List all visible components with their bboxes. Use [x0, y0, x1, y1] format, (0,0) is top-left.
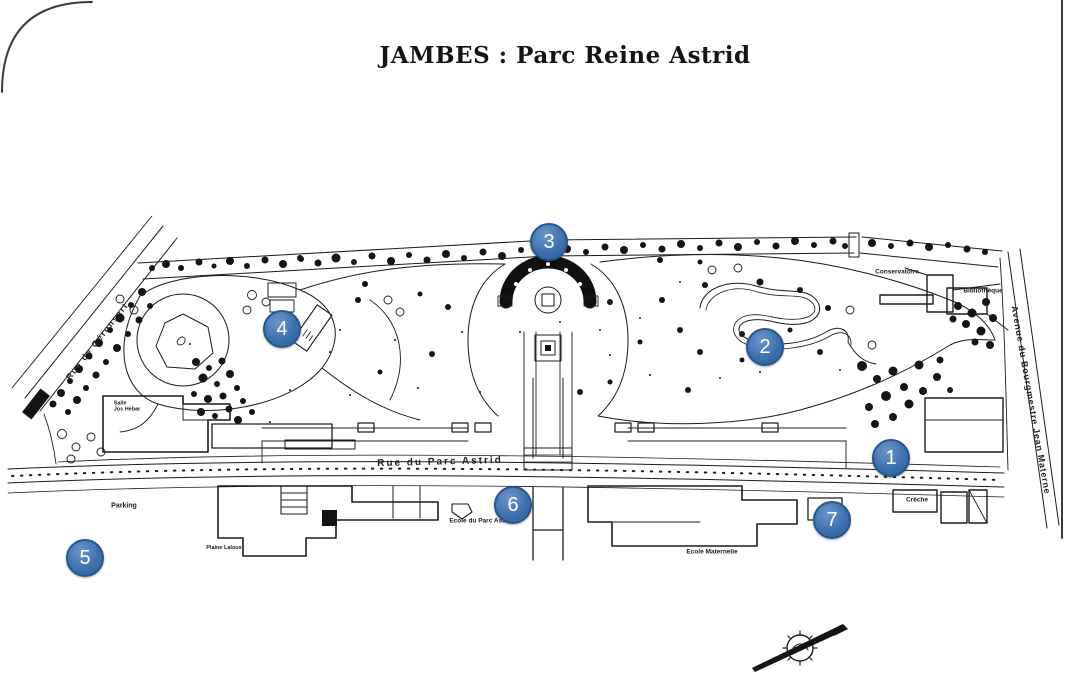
map-marker-3[interactable]: 3: [530, 223, 568, 261]
park-map-drawing: [0, 0, 1080, 675]
map-marker-6[interactable]: 6: [494, 486, 532, 524]
place-label-salle-line2: Jos Hebar: [114, 407, 141, 413]
map-page: JAMBES : Parc Reine Astrid Rue de Gérons…: [0, 0, 1080, 675]
place-label-creche: Crèche: [906, 497, 928, 504]
fountain: [535, 335, 561, 361]
place-label-ecole-maternelle: Ecole Maternelle: [686, 549, 737, 556]
bandstand: [498, 262, 598, 313]
compass-icon: [752, 624, 848, 672]
map-marker-4[interactable]: 4: [263, 310, 301, 348]
pond: [700, 283, 876, 364]
building-conservatoire: [880, 268, 1008, 452]
building-ecole-maternelle: [588, 486, 842, 546]
place-label-bibliotheque: Bibliothèque: [963, 288, 1002, 295]
place-label-plaine: Plaine Laloux: [206, 545, 241, 551]
map-marker-1[interactable]: 1: [872, 439, 910, 477]
place-label-salle: Salle Jos Hebar: [114, 401, 141, 414]
map-marker-5[interactable]: 5: [66, 539, 104, 577]
map-marker-7[interactable]: 7: [813, 501, 851, 539]
building-salle: [103, 396, 355, 452]
map-marker-2[interactable]: 2: [746, 328, 784, 366]
place-label-conservatoire: Conservatoire: [875, 269, 919, 276]
circle-garden: [137, 294, 229, 386]
place-label-parking: Parking: [111, 503, 137, 510]
map-title: JAMBES : Parc Reine Astrid: [379, 42, 750, 69]
